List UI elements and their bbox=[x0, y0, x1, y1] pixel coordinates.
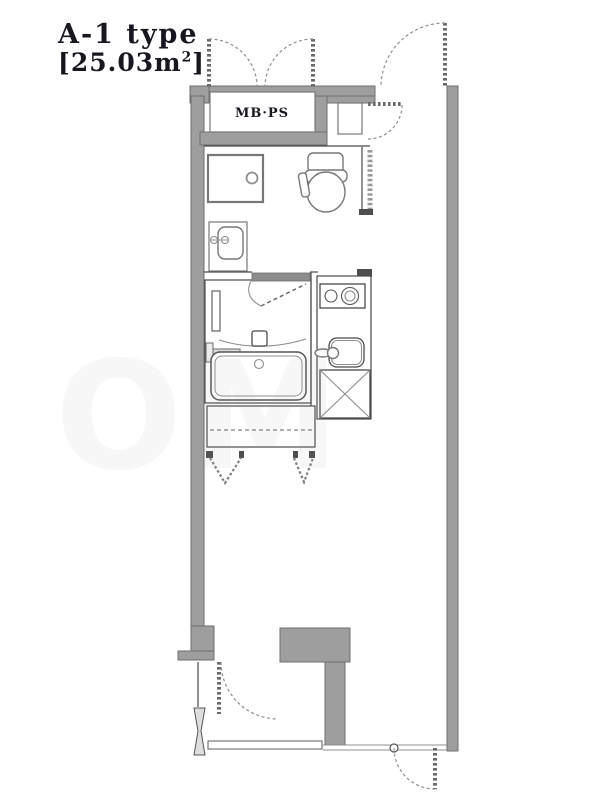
wall-meter-box-right bbox=[315, 96, 327, 132]
balcony bbox=[194, 662, 322, 755]
wall-top-right bbox=[327, 96, 375, 103]
closet-bifold-doors bbox=[206, 451, 315, 483]
wall-end-tick bbox=[359, 209, 373, 215]
wall-left bbox=[191, 96, 204, 627]
mirror-cabinet bbox=[212, 291, 220, 331]
closet bbox=[206, 406, 315, 483]
area-superscript: 2 bbox=[182, 50, 193, 66]
two-burner-stove bbox=[320, 284, 365, 308]
wall-left-step bbox=[191, 626, 214, 652]
floor-plan: MB·PS bbox=[0, 0, 600, 800]
washing-machine-pan bbox=[208, 155, 263, 202]
entrance-door bbox=[381, 23, 445, 87]
area-unit: m bbox=[154, 48, 181, 77]
toilet-room-door bbox=[368, 104, 402, 139]
bathroom bbox=[205, 273, 311, 403]
plan-title: A-1 type [25.03m2] bbox=[58, 20, 205, 76]
service-door bbox=[390, 744, 435, 789]
shoe-cabinet bbox=[338, 103, 362, 134]
mixing-valve bbox=[252, 331, 267, 346]
unit-type-label: A-1 type bbox=[58, 20, 205, 49]
unit-area-label: [25.03m2] bbox=[58, 49, 205, 76]
floor-plan-drawing: MB·PS bbox=[0, 0, 600, 800]
wall-below-meter-box bbox=[200, 132, 327, 145]
service-entry bbox=[323, 744, 447, 789]
washroom bbox=[204, 146, 373, 277]
area-open-bracket: [ bbox=[58, 48, 71, 77]
area-value: 25.03 bbox=[71, 48, 154, 77]
wall-left-foot bbox=[178, 651, 214, 660]
meter-box-double-doors bbox=[209, 39, 313, 87]
meter-box-label: MB·PS bbox=[235, 106, 289, 121]
balcony-door bbox=[219, 662, 278, 719]
kitchen bbox=[311, 272, 371, 419]
washbasin bbox=[209, 222, 247, 271]
area-close-bracket: ] bbox=[192, 48, 205, 77]
wall-right bbox=[447, 86, 458, 751]
closet-outline bbox=[207, 406, 315, 447]
toilet bbox=[298, 153, 347, 212]
wall-bottom-band bbox=[280, 628, 350, 662]
balcony-partition bbox=[194, 708, 205, 755]
bathroom-door-sill bbox=[252, 273, 310, 281]
sliding-window bbox=[208, 741, 322, 749]
bathtub bbox=[211, 352, 306, 400]
refrigerator-space bbox=[320, 370, 370, 418]
wall-bottom-vertical bbox=[325, 662, 345, 745]
